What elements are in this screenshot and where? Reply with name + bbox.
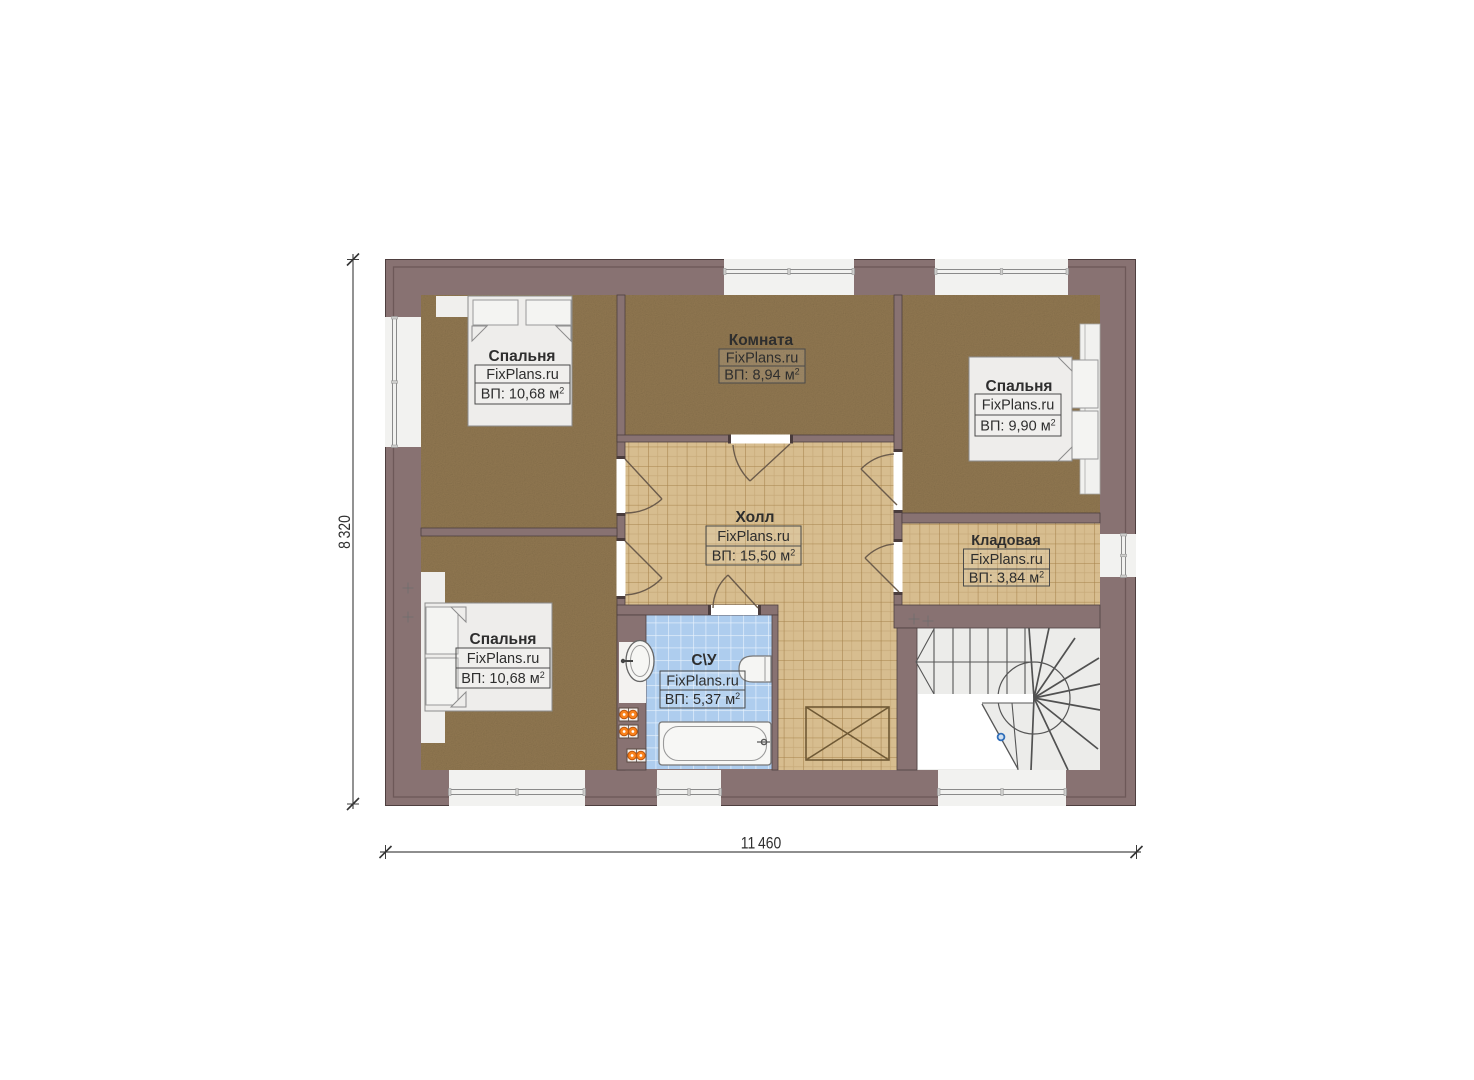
svg-text:ВП: 8,94 м2: ВП: 8,94 м2 <box>724 367 799 384</box>
svg-text:Комната: Комната <box>729 332 794 349</box>
svg-text:ВП: 10,68 м2: ВП: 10,68 м2 <box>461 670 544 687</box>
svg-text:Спальня: Спальня <box>986 378 1053 395</box>
svg-text:ВП: 9,90 м2: ВП: 9,90 м2 <box>980 418 1055 435</box>
svg-text:ВП: 5,37 м2: ВП: 5,37 м2 <box>665 691 740 708</box>
svg-text:ВП: 10,68 м2: ВП: 10,68 м2 <box>481 386 564 403</box>
svg-text:11 460: 11 460 <box>741 834 782 853</box>
svg-text:ВП: 3,84 м2: ВП: 3,84 м2 <box>969 570 1044 587</box>
svg-text:8 320: 8 320 <box>336 515 355 549</box>
svg-text:FixPlans.ru: FixPlans.ru <box>486 367 559 383</box>
svg-text:Спальня: Спальня <box>489 348 556 365</box>
svg-text:С\У: С\У <box>691 652 717 669</box>
svg-text:FixPlans.ru: FixPlans.ru <box>726 351 799 367</box>
svg-text:FixPlans.ru: FixPlans.ru <box>717 529 790 545</box>
svg-text:Спальня: Спальня <box>470 631 537 648</box>
svg-text:Холл: Холл <box>736 509 775 526</box>
svg-text:ВП: 15,50 м2: ВП: 15,50 м2 <box>712 548 795 565</box>
svg-text:Кладовая: Кладовая <box>971 533 1040 549</box>
svg-text:FixPlans.ru: FixPlans.ru <box>666 674 739 690</box>
svg-text:FixPlans.ru: FixPlans.ru <box>982 398 1055 414</box>
svg-text:FixPlans.ru: FixPlans.ru <box>970 552 1043 568</box>
svg-text:FixPlans.ru: FixPlans.ru <box>467 651 540 667</box>
